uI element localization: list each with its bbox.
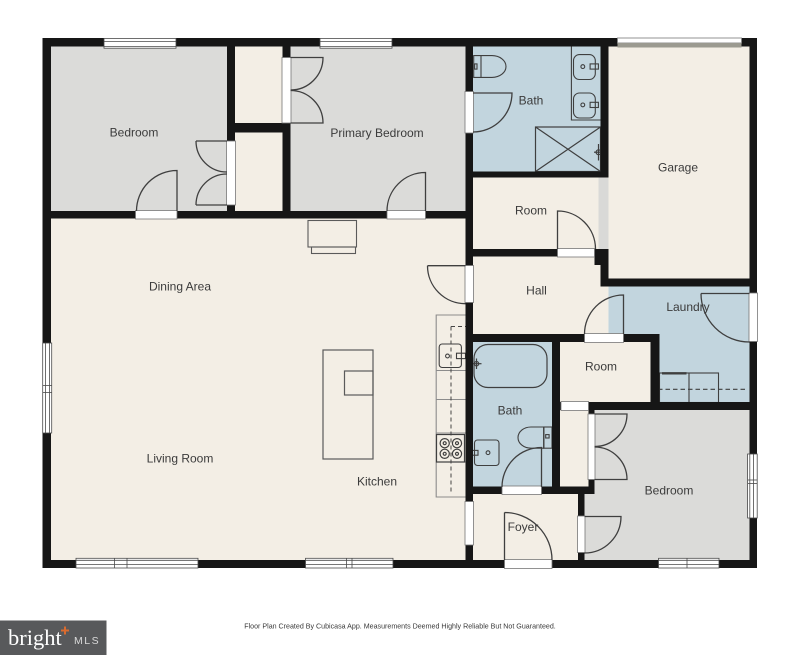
svg-text:Kitchen: Kitchen [357, 475, 397, 489]
svg-text:Floor Plan Created By Cubicasa: Floor Plan Created By Cubicasa App. Meas… [244, 623, 556, 631]
svg-text:bright: bright [8, 625, 62, 650]
svg-text:Bedroom: Bedroom [110, 126, 159, 140]
svg-text:MLS: MLS [74, 635, 100, 647]
svg-text:Laundry: Laundry [666, 300, 709, 314]
svg-text:Bath: Bath [519, 94, 544, 108]
svg-text:Hall: Hall [526, 284, 547, 298]
svg-text:Bedroom: Bedroom [645, 484, 694, 498]
svg-text:Bath: Bath [498, 404, 523, 418]
svg-text:Foyer: Foyer [508, 520, 539, 534]
svg-text:Dining Area: Dining Area [149, 280, 211, 294]
svg-text:Primary Bedroom: Primary Bedroom [330, 126, 423, 140]
svg-text:Living Room: Living Room [147, 452, 214, 466]
svg-text:Room: Room [515, 204, 547, 218]
svg-text:Garage: Garage [658, 161, 698, 175]
svg-text:Room: Room [585, 360, 617, 374]
